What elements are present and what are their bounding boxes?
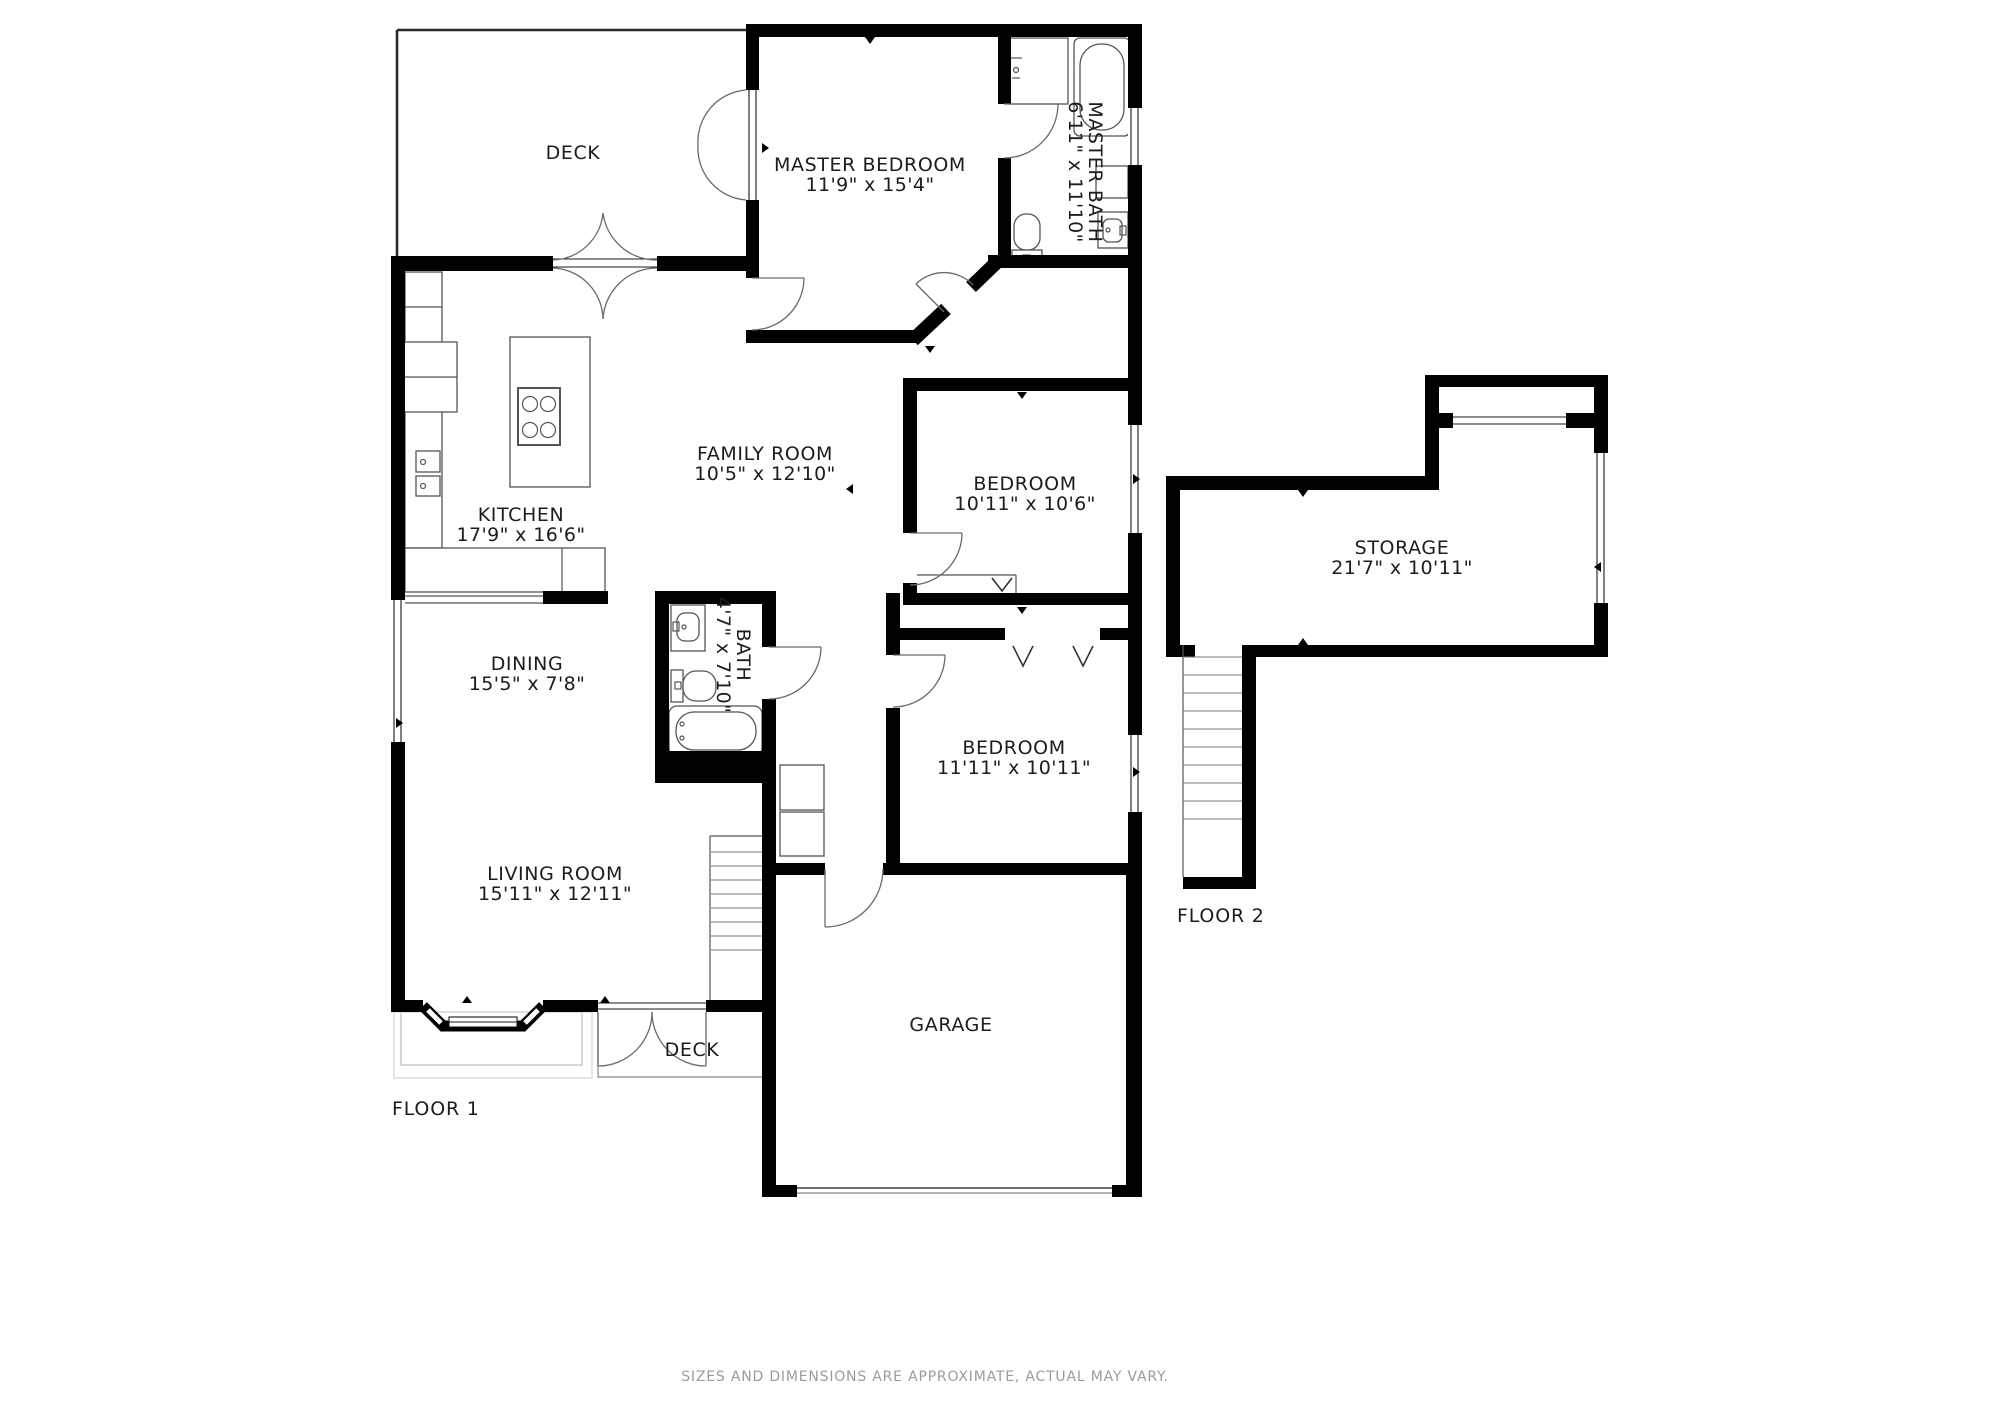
dining-label: DINING	[491, 653, 564, 675]
floor1-label: FLOOR 1	[392, 1098, 480, 1120]
hall-closets	[780, 765, 824, 856]
floor1-plan: DECK MASTER BEDROOM 11'9" x 15'4" MASTER…	[391, 24, 1142, 1197]
master-bedroom-label: MASTER BEDROOM	[774, 154, 966, 176]
living-room-label: LIVING ROOM	[487, 863, 623, 885]
bedroom-closets	[917, 575, 1093, 666]
bedroom1-label: BEDROOM	[973, 473, 1076, 495]
living-room-dims: 15'11" x 12'11"	[478, 883, 632, 905]
bath-sink	[671, 605, 705, 651]
kitchen-dining-divider	[405, 596, 543, 603]
storage-opening	[1453, 417, 1566, 424]
floor2-walls	[1166, 375, 1608, 889]
bath-toilet	[671, 670, 716, 702]
bedroom1-dims: 10'11" x 10'6"	[954, 493, 1095, 515]
stairs-floor1	[710, 836, 762, 1000]
floor2-label: FLOOR 2	[1177, 905, 1265, 927]
master-bath-shower	[1010, 38, 1068, 104]
floorplan-drawing: DECK MASTER BEDROOM 11'9" x 15'4" MASTER…	[0, 0, 2000, 1414]
family-room-label: FAMILY ROOM	[697, 443, 833, 465]
stairs-floor2	[1183, 645, 1242, 877]
master-bath-label: MASTER BATH	[1084, 101, 1106, 242]
deck-top-label: DECK	[546, 142, 601, 164]
deck-bottom-label: DECK	[665, 1039, 720, 1061]
master-bedroom-dims: 11'9" x 15'4"	[806, 174, 935, 196]
bedroom2-dims: 11'11" x 10'11"	[937, 757, 1091, 779]
family-room-dims: 10'5" x 12'10"	[694, 463, 835, 485]
kitchen-dims: 17'9" x 16'6"	[457, 524, 586, 546]
storage-window	[1594, 453, 1608, 603]
kitchen-island	[510, 337, 590, 487]
garage-label: GARAGE	[909, 1014, 992, 1036]
dining-dims: 15'5" x 7'8"	[469, 673, 586, 695]
bedroom2-label: BEDROOM	[962, 737, 1065, 759]
bath-tub	[669, 706, 762, 756]
disclaimer-text: SIZES AND DIMENSIONS ARE APPROXIMATE, AC…	[681, 1369, 1168, 1385]
kitchen-label: KITCHEN	[478, 504, 565, 526]
floor2-plan: STORAGE 21'7" x 10'11" FLOOR 2	[1166, 375, 1608, 927]
doors-floor1	[553, 90, 1058, 1066]
bath-label: BATH	[732, 629, 754, 682]
bath-dims: 4'7" x 7'10"	[712, 597, 734, 714]
storage-dims: 21'7" x 10'11"	[1331, 557, 1472, 579]
storage-label: STORAGE	[1355, 537, 1450, 559]
refrigerator	[403, 342, 457, 412]
master-bath-dims: 6'11" x 11'10"	[1064, 101, 1086, 242]
floorplan-page: DECK MASTER BEDROOM 11'9" x 15'4" MASTER…	[0, 0, 2000, 1414]
